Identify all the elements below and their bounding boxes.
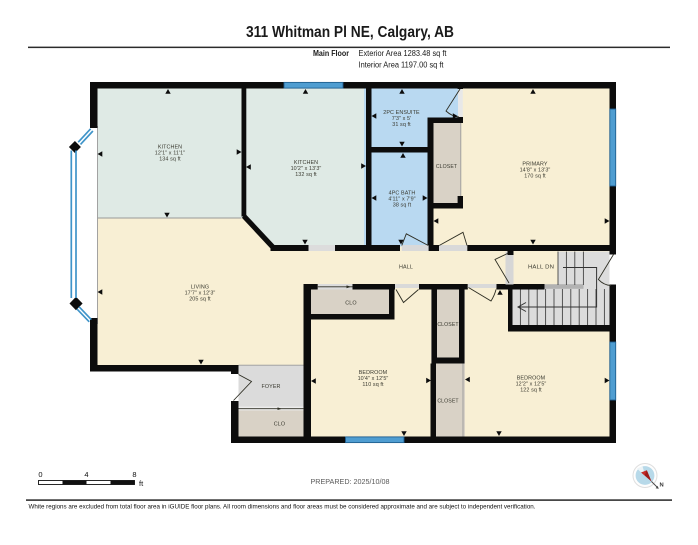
svg-text:38 sq ft: 38 sq ft	[393, 203, 412, 209]
svg-text:10'2" x 13'3": 10'2" x 13'3"	[291, 166, 322, 172]
svg-text:HALL: HALL	[399, 265, 413, 271]
svg-text:KITCHEN: KITCHEN	[158, 144, 182, 150]
svg-text:311 Whitman Pl NE, Calgary, AB: 311 Whitman Pl NE, Calgary, AB	[246, 24, 454, 41]
svg-text:10'4" x 12'5": 10'4" x 12'5"	[358, 376, 389, 382]
svg-text:4PC BATH: 4PC BATH	[389, 191, 416, 197]
svg-text:CLOSET: CLOSET	[437, 398, 459, 404]
svg-text:White regions are excluded fro: White regions are excluded from total fl…	[29, 504, 536, 511]
svg-text:122 sq ft: 122 sq ft	[520, 388, 542, 394]
svg-text:CLOSET: CLOSET	[436, 164, 458, 170]
svg-text:4'11" x 7'9": 4'11" x 7'9"	[388, 197, 415, 203]
svg-text:132 sq ft: 132 sq ft	[295, 172, 317, 178]
svg-text:31 sq ft: 31 sq ft	[392, 122, 411, 128]
svg-text:134 sq ft: 134 sq ft	[159, 157, 181, 163]
svg-text:CLO: CLO	[345, 300, 356, 306]
svg-text:170 sq ft: 170 sq ft	[524, 174, 546, 180]
svg-text:CLO: CLO	[274, 422, 285, 428]
svg-text:17'7" x 12'3": 17'7" x 12'3"	[185, 290, 216, 296]
svg-text:PRIMARY: PRIMARY	[522, 161, 547, 167]
svg-text:14'8" x 13'3": 14'8" x 13'3"	[520, 167, 551, 173]
svg-text:BEDROOM: BEDROOM	[517, 376, 546, 382]
svg-text:8: 8	[132, 470, 136, 479]
svg-text:205 sq ft: 205 sq ft	[189, 297, 211, 303]
svg-text:0: 0	[38, 470, 42, 479]
svg-text:HALL DN: HALL DN	[528, 265, 554, 271]
svg-text:KITCHEN: KITCHEN	[294, 160, 318, 166]
svg-text:4: 4	[84, 470, 88, 479]
svg-text:Interior Area 1197.00 sq ft: Interior Area 1197.00 sq ft	[359, 61, 445, 70]
svg-text:7'3" x 5': 7'3" x 5'	[392, 116, 412, 122]
svg-text:12'2" x 12'5": 12'2" x 12'5"	[516, 382, 547, 388]
svg-text:FOYER: FOYER	[261, 384, 280, 390]
svg-text:N: N	[660, 483, 664, 489]
svg-text:12'1" x 11'1": 12'1" x 11'1"	[155, 150, 185, 156]
svg-text:PREPARED: 2025/10/08: PREPARED: 2025/10/08	[311, 477, 390, 486]
svg-text:Exterior Area 1283.48 sq ft: Exterior Area 1283.48 sq ft	[359, 49, 448, 58]
svg-text:Main Floor: Main Floor	[313, 49, 349, 58]
svg-text:2PC ENSUITE: 2PC ENSUITE	[383, 110, 420, 116]
svg-text:CLOSET: CLOSET	[437, 322, 459, 328]
svg-text:110 sq ft: 110 sq ft	[362, 382, 384, 388]
svg-text:LIVING: LIVING	[191, 284, 209, 290]
svg-text:BEDROOM: BEDROOM	[359, 370, 388, 376]
